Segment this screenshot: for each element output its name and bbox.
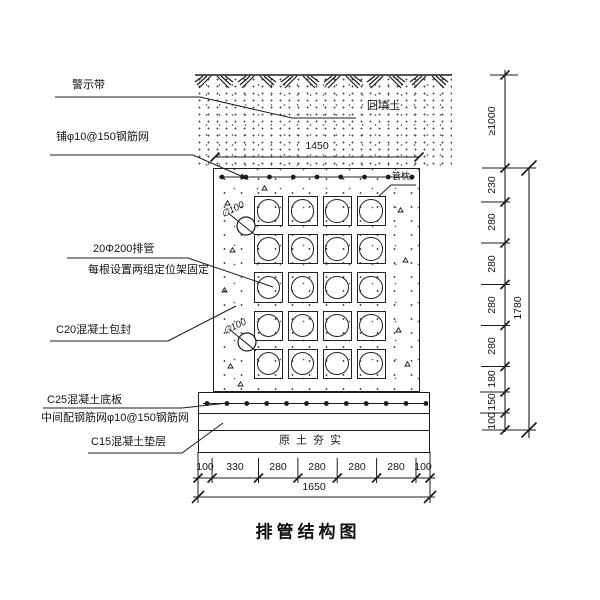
mid-mesh-label: 中间配钢筋网φ10@150钢筋网 xyxy=(41,412,189,425)
pipe-cell xyxy=(254,272,283,302)
pipe-cell xyxy=(288,349,317,379)
pipe-cell xyxy=(288,272,317,302)
pipe-cell xyxy=(357,196,386,226)
dimension-tick xyxy=(208,474,217,483)
dimension-tick xyxy=(426,474,435,483)
dim-bottom-seg-0: 100 xyxy=(196,462,214,474)
pipe-circle xyxy=(257,237,281,261)
pipe-cell xyxy=(323,349,352,379)
pipe-circle xyxy=(325,237,349,261)
base-slab xyxy=(198,392,430,414)
dim-bottom-seg-2: 280 xyxy=(269,462,287,474)
base-slab-label: C25混凝土底板 xyxy=(47,394,122,407)
dimension-tick xyxy=(522,161,537,176)
dim-right-seg-1: 280 xyxy=(487,213,499,231)
dimension-tick xyxy=(501,71,510,80)
dimension-tick xyxy=(501,198,510,207)
dimension-tick xyxy=(194,474,203,483)
dim-right-seg-5: 180 xyxy=(487,370,499,388)
dimension-tick xyxy=(293,474,302,483)
dimension-tick xyxy=(333,474,342,483)
pipe-cell xyxy=(357,272,386,302)
pipe-cell xyxy=(323,196,352,226)
drawing-title: 排管结构图 xyxy=(256,518,361,543)
pipe-cell xyxy=(323,272,352,302)
dimension-tick xyxy=(501,388,510,397)
pipe-cell xyxy=(288,196,317,226)
compacted-soil-label: 原土夯实 xyxy=(279,434,347,447)
dim-bottom-total: 1650 xyxy=(302,482,325,494)
dimension-tick xyxy=(501,426,510,435)
dimension-tick xyxy=(522,423,537,438)
pipe-cell xyxy=(357,234,386,264)
dimension-tick xyxy=(501,164,510,173)
dim-right-seg-2: 280 xyxy=(487,255,499,273)
pipe-circle xyxy=(291,237,315,261)
pipe-circle xyxy=(257,276,281,300)
pipe-circle xyxy=(291,314,315,338)
pipe-pillow-label: 管枕 xyxy=(392,171,410,182)
pipe-circle xyxy=(359,314,383,338)
dimension-tick xyxy=(372,474,381,483)
encasement-label: C20混凝土包封 xyxy=(56,324,131,337)
dim-right-seg-4: 280 xyxy=(487,337,499,355)
dimension-tick xyxy=(501,321,510,330)
pipes-label-line2: 每根设置两组定位架固定 xyxy=(88,264,209,277)
pipe-cell xyxy=(288,311,317,341)
cushion-layer xyxy=(198,413,430,431)
dim-right-seg-7: 100 xyxy=(487,412,499,430)
pipe-circle xyxy=(257,352,281,376)
pipes-label-line1: 20Φ200排管 xyxy=(93,243,154,256)
pipe-cell xyxy=(254,349,283,379)
dim-top-width: 1450 xyxy=(303,141,330,153)
pipe-cell xyxy=(323,234,352,264)
pipe-circle xyxy=(325,276,349,300)
dimension-tick xyxy=(501,409,510,418)
pipe-cell xyxy=(288,234,317,264)
cushion-label: C15混凝土垫层 xyxy=(91,436,166,449)
dim-bottom-seg-5: 280 xyxy=(387,462,405,474)
dim-bottom-seg-6: 100 xyxy=(414,462,432,474)
dimension-tick xyxy=(254,474,263,483)
pipe-cell xyxy=(323,311,352,341)
dim-cover-depth: ≥1000 xyxy=(487,106,499,135)
pipe-circle xyxy=(325,314,349,338)
pipe-grid xyxy=(254,196,386,379)
backfill-label: 回填土 xyxy=(367,100,400,113)
warning-tape-label: 警示带 xyxy=(72,79,105,92)
dimension-tick xyxy=(424,491,436,503)
pipe-circle xyxy=(291,276,315,300)
pipe-circle xyxy=(359,352,383,376)
dimension-tick xyxy=(192,491,204,503)
dim-right-total: 1780 xyxy=(513,296,525,319)
dimension-tick xyxy=(412,474,421,483)
dim-right-seg-3: 280 xyxy=(487,296,499,314)
pipe-circle xyxy=(359,237,383,261)
pipe-cell xyxy=(254,234,283,264)
dimension-tick xyxy=(501,280,510,289)
pipe-circle xyxy=(325,352,349,376)
pipe-cell xyxy=(254,196,283,226)
dim-right-seg-0: 230 xyxy=(487,176,499,194)
pipe-bank-structure-drawing: 警示带 铺φ10@150钢筋网 回填土 20Φ200排管 每根设置两组定位架固定… xyxy=(0,0,600,600)
pipe-circle xyxy=(257,314,281,338)
dim-bottom-seg-3: 280 xyxy=(308,462,326,474)
pipe-cell xyxy=(357,311,386,341)
dimension-tick xyxy=(501,362,510,371)
dim-bottom-seg-4: 280 xyxy=(348,462,366,474)
pipe-circle xyxy=(291,199,315,223)
dim-right-seg-6: 150 xyxy=(487,393,499,411)
top-mesh-label: 铺φ10@150钢筋网 xyxy=(56,131,149,144)
dim-bottom-seg-1: 330 xyxy=(226,462,244,474)
pipe-circle xyxy=(325,199,349,223)
pipe-cell xyxy=(357,349,386,379)
pipe-circle xyxy=(359,276,383,300)
pipe-circle xyxy=(257,199,281,223)
backfill-soil-region xyxy=(195,76,452,168)
pipe-circle xyxy=(291,352,315,376)
pipe-cell xyxy=(254,311,283,341)
dimension-tick xyxy=(501,239,510,248)
pipe-circle xyxy=(359,199,383,223)
